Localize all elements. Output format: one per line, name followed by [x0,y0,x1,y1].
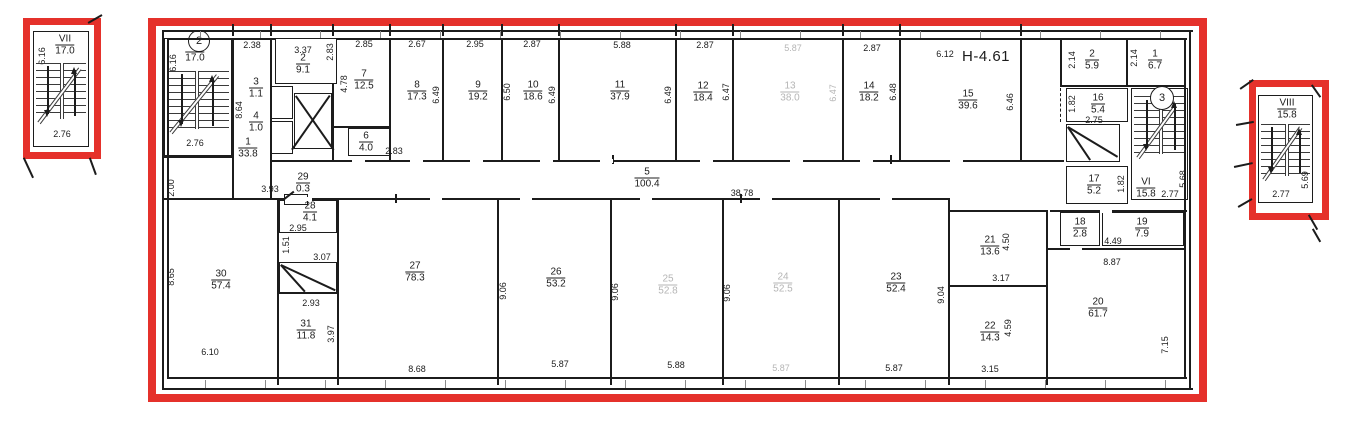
wall [1046,248,1186,250]
wall [1060,85,1186,87]
room-wall-box [271,86,293,119]
window-mullion [980,31,981,38]
room-label-7: 712.5 [354,69,373,92]
wall [838,198,840,378]
door-opening [540,159,553,163]
wall [1184,38,1186,379]
window-mullion [1160,31,1161,38]
window-mullion [685,380,686,388]
dimension: 2.95 [289,223,307,233]
dimension: 5.87 [784,43,802,53]
window-mullion [920,31,921,38]
room-label-31: 3111.8 [297,319,316,342]
wall [1046,210,1048,378]
stair-width-dim: 2.76 [186,138,204,148]
dimension-tick [270,24,272,36]
dimension: 3.97 [326,325,336,343]
room-wall-box [271,121,293,154]
stair-down-arrow [1146,100,1148,148]
wall [1189,30,1191,390]
dimension: 4.59 [1003,319,1013,337]
door-opening [410,159,423,163]
dimension: 2.83 [325,43,335,61]
room-label-27: 2778.3 [405,261,424,284]
dimension: 7.15 [1160,336,1170,354]
dimension: 5.87 [551,359,569,369]
diagonal-line [1312,228,1321,242]
dimension: 6.10 [201,347,219,357]
stair-up-arrow [1299,131,1301,173]
dimension: 8.64 [234,101,244,119]
room-label-16: 165.4 [1091,93,1105,116]
window-mullion [1105,380,1106,388]
dimension: 9.06 [498,282,508,300]
wall [1060,38,1062,87]
stair-down-arrow [181,74,183,124]
wall [842,38,844,162]
window-mullion [380,31,381,38]
window-mullion [860,31,861,38]
dimension: 8.87 [1103,257,1121,267]
wall [167,38,169,379]
door-opening [950,159,963,163]
window-mullion [680,31,681,38]
dimension: 1.82 [1116,175,1126,193]
dimension: 6.47 [721,83,731,101]
dimension: 6.50 [502,83,512,101]
dimension: 2.95 [466,39,484,49]
dimension: 9.06 [610,283,620,301]
dashed-wall [1060,88,1061,122]
stairwell-label: VII17.0 [55,34,74,57]
dimension-tick [890,155,892,164]
room-label-17: 175.2 [1087,174,1101,197]
window-mullion [800,31,801,38]
wall [162,30,1193,32]
dimension: 2.75 [1085,115,1103,125]
floor-plan-canvas: V17.0 6.16 2.76 VI15.8 2.77 5.68 VII17.0… [0,0,1345,445]
dimension-tick [899,24,901,36]
dimension-tick [442,24,444,36]
dimension: 5.87 [772,363,790,373]
dimension-tick [838,371,840,385]
window-mullion [500,31,501,38]
dimension: 6.49 [663,86,673,104]
wall [948,198,950,378]
door-opening [600,159,613,163]
dimension-tick [1020,24,1022,36]
section-marker-2: 2 [188,30,210,52]
wall [948,210,1048,212]
dimension: 1.82 [1067,95,1077,113]
dimension: 1.51 [281,236,291,254]
stair-height-dim: 5.68 [1178,170,1188,188]
room-label-1: 133.8 [238,137,257,160]
dimension: 6.49 [547,86,557,104]
dimension-tick [332,24,334,36]
window-mullion [740,31,741,38]
dimension: 3.07 [313,252,331,262]
door-opening [470,159,483,163]
dimension-tick [948,371,950,385]
dimension: 2.14 [1129,49,1139,67]
dimension-tick [722,371,724,385]
dimension: 3.15 [981,364,999,374]
dimension-tick [395,194,397,203]
section-marker-3: 3 [1150,86,1174,110]
door-opening [520,197,532,201]
window-mullion [865,380,866,388]
room-label-21: 2113.6 [980,235,999,258]
room-label-2: 29.1 [296,53,310,76]
room-label-23: 2352.4 [886,272,905,295]
wall [270,160,1064,162]
wall [232,38,234,200]
dimension-tick [501,24,503,36]
dimension: 2.87 [523,39,541,49]
window-mullion [745,380,746,388]
room-label-18: 182.8 [1073,217,1087,240]
door-opening [352,159,365,163]
dimension: 2.85 [355,39,373,49]
room-label-19: 197.9 [1135,217,1149,240]
room-label-20: 2061.7 [1088,297,1107,320]
room-label-15: 1539.6 [958,89,977,112]
stair-down-arrow [1271,127,1273,171]
stairwell-detail-right: VIII15.8 2.77 5.69 [1258,95,1313,203]
door-opening [430,197,442,201]
room-label-4: 41.0 [249,111,263,134]
room-label-11: 1137.9 [610,80,629,103]
room-label-5: 5100.4 [634,167,659,190]
wall [675,38,677,162]
stair-up-arrow [1174,104,1176,150]
wall [337,198,339,378]
dimension: 3.93 [261,184,279,194]
dimension-tick [610,371,612,385]
diagonal-line [89,157,97,174]
room-label-9: 919.2 [468,80,487,103]
wall [948,285,1048,287]
dimension: 2.38 [243,40,261,50]
door-opening [640,197,652,201]
room-label-8: 817.3 [407,80,426,103]
wall [167,377,1187,379]
dimension: 9.06 [722,284,732,302]
window-mullion [620,31,621,38]
stair-width-dim: 2.76 [53,129,71,139]
dimension: 5.88 [613,40,631,50]
wall [442,38,444,162]
dimension-tick [497,371,499,385]
door-opening [860,159,873,163]
dimension: 8.65 [166,268,176,286]
room-label-29: 290.3 [296,172,310,195]
dimension: 2.14 [1067,51,1077,69]
stair-height-dim: 5.69 [1300,171,1310,189]
dimension: 38.78 [731,188,754,198]
dimension-tick [232,24,234,36]
window-mullion [925,380,926,388]
room-label-14: 1418.2 [859,81,878,104]
room-label-22: 2214.3 [980,321,999,344]
room-label-12: 1218.4 [693,81,712,104]
window-mullion [260,31,261,38]
window-mullion [805,380,806,388]
stairwell-detail-left: VII17.0 6.16 2.76 [33,31,89,147]
door-opening [790,159,803,163]
window-mullion [445,380,446,388]
wall [1126,38,1128,87]
room-label-2: 25.9 [1085,49,1099,72]
window-mullion [1040,31,1041,38]
dimension: 2.87 [696,40,714,50]
dimension: 8.68 [408,364,426,374]
window-mullion [560,31,561,38]
door-opening [760,197,772,201]
dimension: 9.04 [936,286,946,304]
stairwell-plan-left: V17.0 6.16 2.76 [164,38,232,156]
window-mullion [205,380,206,388]
dimension: 5.88 [667,360,685,370]
window-mullion [985,380,986,388]
stair-up-arrow [212,78,214,126]
door-opening [700,159,713,163]
window-mullion [440,31,441,38]
room-label-6: 64.0 [359,131,373,154]
dimension: 6.47 [828,84,838,102]
window-mullion [200,31,201,38]
dimension: 2.67 [408,39,426,49]
wall [899,38,901,162]
dimension: 6.48 [888,83,898,101]
stairwell-label: VI15.8 [1136,177,1155,200]
window-mullion [320,31,321,38]
wall [558,38,560,162]
dimension-tick [732,24,734,36]
dimension-tick [675,24,677,36]
window-mullion [505,380,506,388]
wall [162,388,1193,390]
dimension: 3.17 [992,273,1010,283]
dimension-tick [337,371,339,385]
wall [1020,38,1022,162]
wall [270,38,272,200]
dimension: 2.83 [385,146,403,156]
room-label-24: 2452.5 [773,272,792,295]
window-mullion [1045,380,1046,388]
dimension: 3.37 [294,45,312,55]
window-mullion [565,380,566,388]
dimension: 4.49 [1104,236,1122,246]
stair-down-arrow [47,66,49,114]
window-mullion [265,380,266,388]
dimension-tick [1046,371,1048,385]
dimension: 4.50 [1001,233,1011,251]
room-label-10: 1018.6 [523,80,542,103]
room-label-26: 2653.2 [546,267,565,290]
dimension: 2.93 [302,298,320,308]
dimension-tick [277,371,279,385]
stair-up-arrow [74,70,76,116]
door-opening [880,197,892,201]
room-label-28: 284.1 [303,201,317,224]
wall [732,38,734,162]
window-mullion [325,380,326,388]
dimension: 6.46 [1005,93,1015,111]
dimension-tick [389,24,391,36]
window-mullion [1100,31,1101,38]
wall [162,30,164,390]
dimension: 5.87 [885,363,903,373]
room-label-3: 31.1 [249,77,263,100]
dimension: 2.00 [166,179,176,197]
dimension: 2.87 [863,43,881,53]
room-label-30: 3057.4 [211,269,230,292]
window-mullion [1165,380,1166,388]
stair-width-dim: 2.77 [1161,189,1179,199]
stair-height-dim: 6.16 [168,54,178,72]
door-opening [1070,247,1082,251]
room-label-13: 1338.0 [780,81,799,104]
elevation-label: H-4.61 [962,48,1010,65]
dimension: 4.78 [339,75,349,93]
stairwell-label: VIII15.8 [1277,98,1296,121]
room-label-1: 16.7 [1148,49,1162,72]
stair-width-dim: 2.77 [1272,189,1290,199]
door-opening [1100,209,1112,213]
room-label-25: 2552.8 [658,274,677,297]
window-mullion [625,380,626,388]
window-mullion [385,380,386,388]
dimension: 6.49 [431,86,441,104]
wall [164,156,232,158]
dimension-tick [842,24,844,36]
diagonal-line [23,157,34,178]
dimension: 6.12 [936,49,954,59]
